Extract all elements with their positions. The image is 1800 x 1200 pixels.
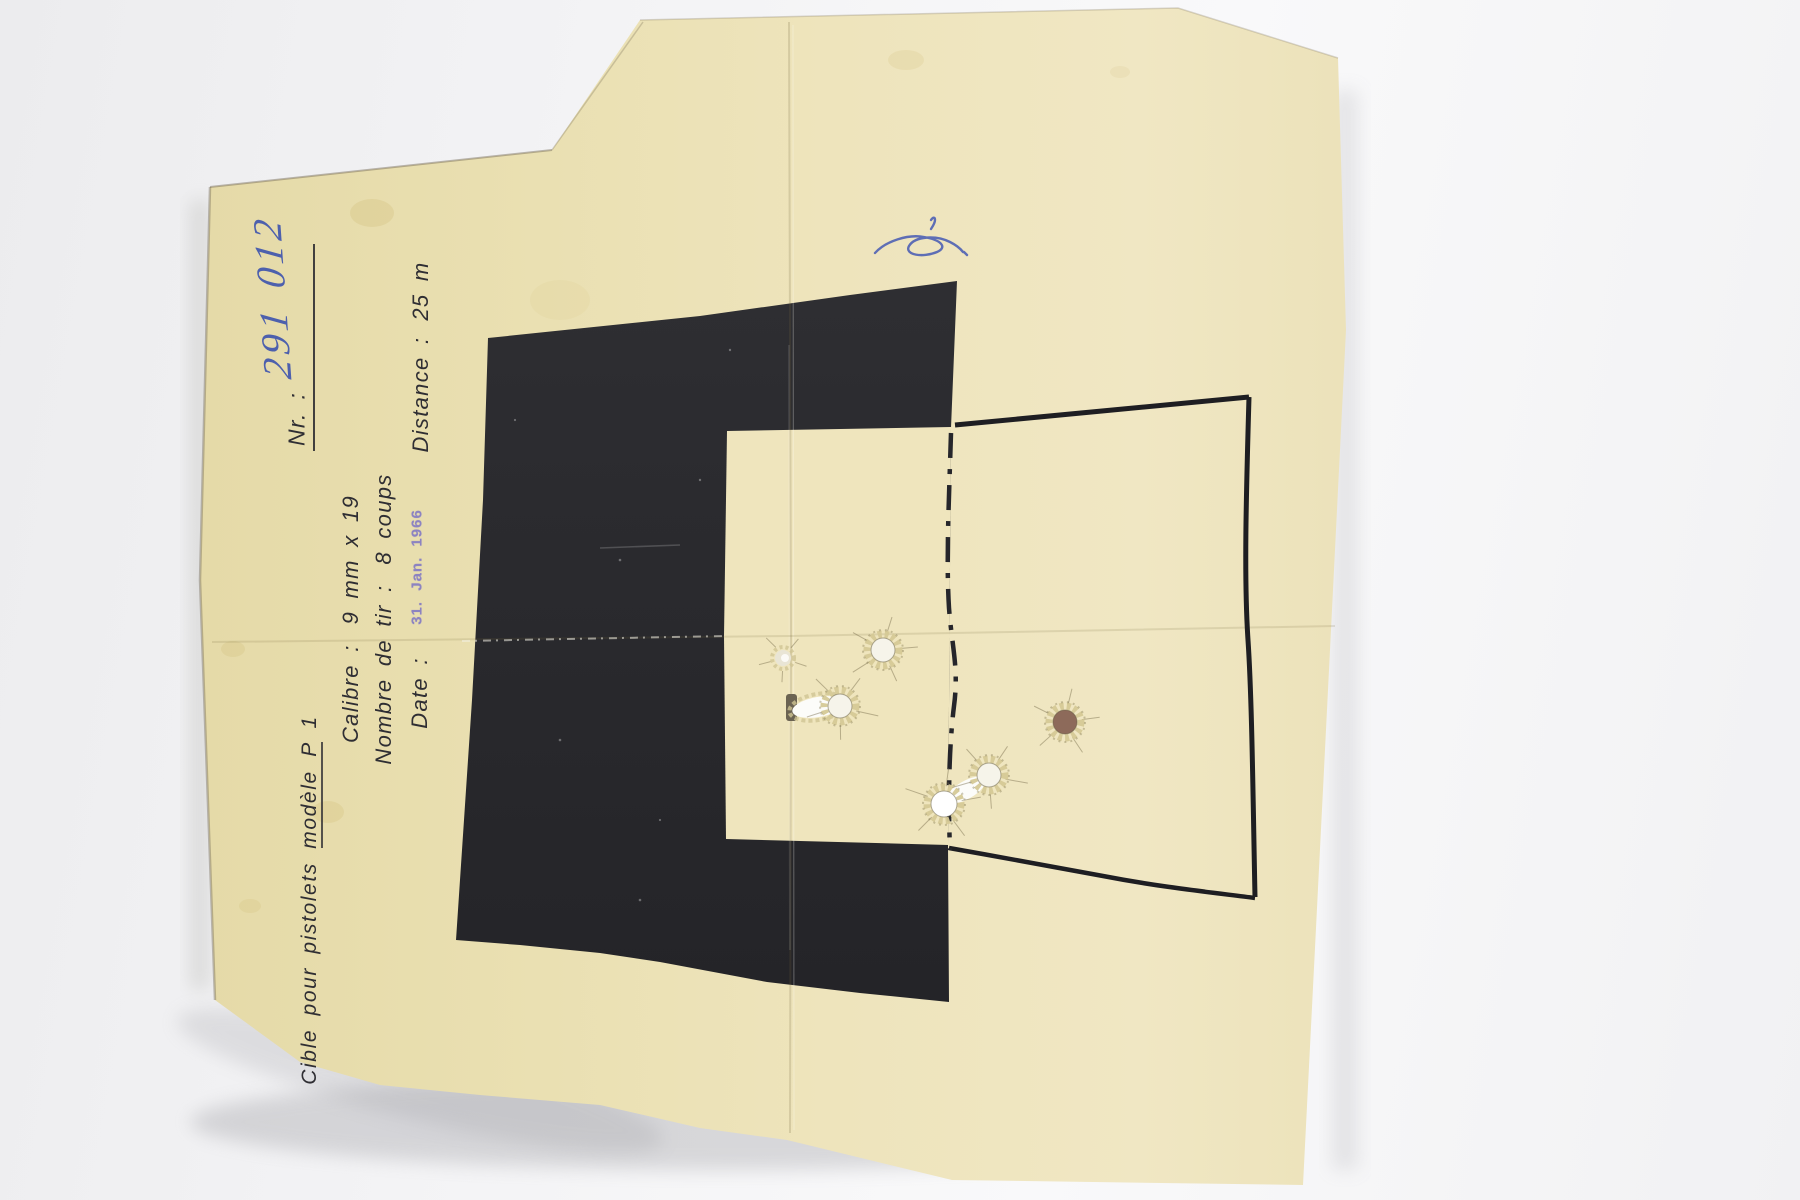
calibre-label: Calibre :: [338, 644, 364, 743]
nr-label: Nr. :: [284, 392, 311, 446]
photo-scene: Cible pour pistolets modèle P 1 Nr. : 29…: [0, 0, 1800, 1200]
distance-line: Distance : 25 m: [408, 262, 434, 453]
shots-value: 8 coups: [371, 473, 397, 564]
shots-line: Nombre de tir : 8 coups: [371, 473, 397, 764]
target-title: Cible pour pistolets modèle P 1: [298, 715, 322, 1084]
shots-label: Nombre de tir :: [371, 585, 397, 765]
calibre-line: Calibre : 9 mm x 19: [338, 495, 364, 743]
distance-label: Distance :: [408, 337, 434, 453]
date-label: Date :: [407, 657, 433, 729]
date-stamp: 31. Jan. 1966: [409, 509, 426, 625]
target-photo-svg: [0, 0, 1800, 1200]
calibre-value: 9 mm x 19: [338, 495, 364, 624]
distance-value: 25 m: [408, 262, 434, 321]
